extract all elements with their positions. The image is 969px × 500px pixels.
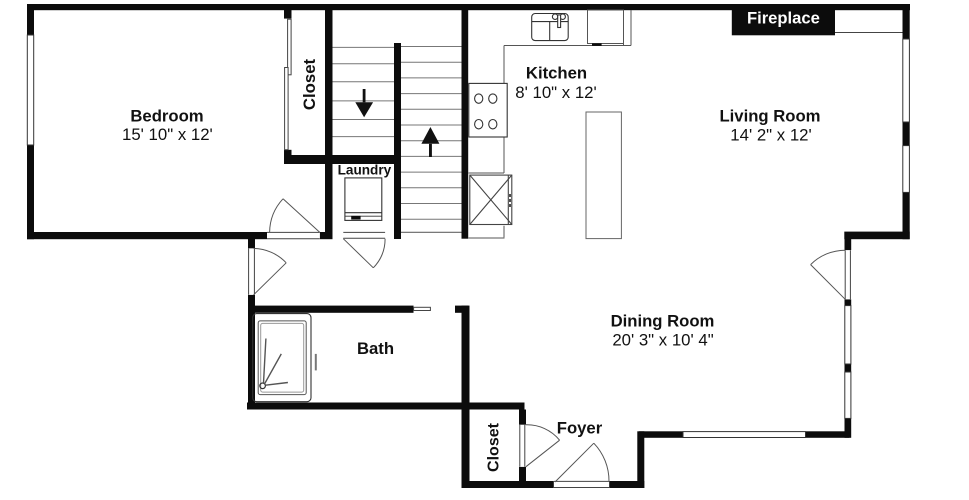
svg-text:Bath: Bath <box>357 339 394 358</box>
svg-text:Laundry: Laundry <box>338 162 392 177</box>
svg-text:15' 10" x 12': 15' 10" x 12' <box>122 125 213 144</box>
svg-text:Bedroom: Bedroom <box>130 107 203 126</box>
svg-text:Kitchen: Kitchen <box>526 64 587 83</box>
svg-text:20' 3" x 10' 4": 20' 3" x 10' 4" <box>612 331 713 350</box>
svg-text:8' 10" x 12': 8' 10" x 12' <box>515 83 596 102</box>
svg-text:Living Room: Living Room <box>719 107 820 126</box>
svg-text:Dining Room: Dining Room <box>611 312 715 331</box>
svg-text:14' 2" x 12': 14' 2" x 12' <box>730 126 811 145</box>
svg-text:Foyer: Foyer <box>557 419 603 438</box>
svg-text:Closet: Closet <box>300 58 319 110</box>
svg-text:Closet: Closet <box>486 422 503 472</box>
svg-text:Fireplace: Fireplace <box>747 9 820 28</box>
